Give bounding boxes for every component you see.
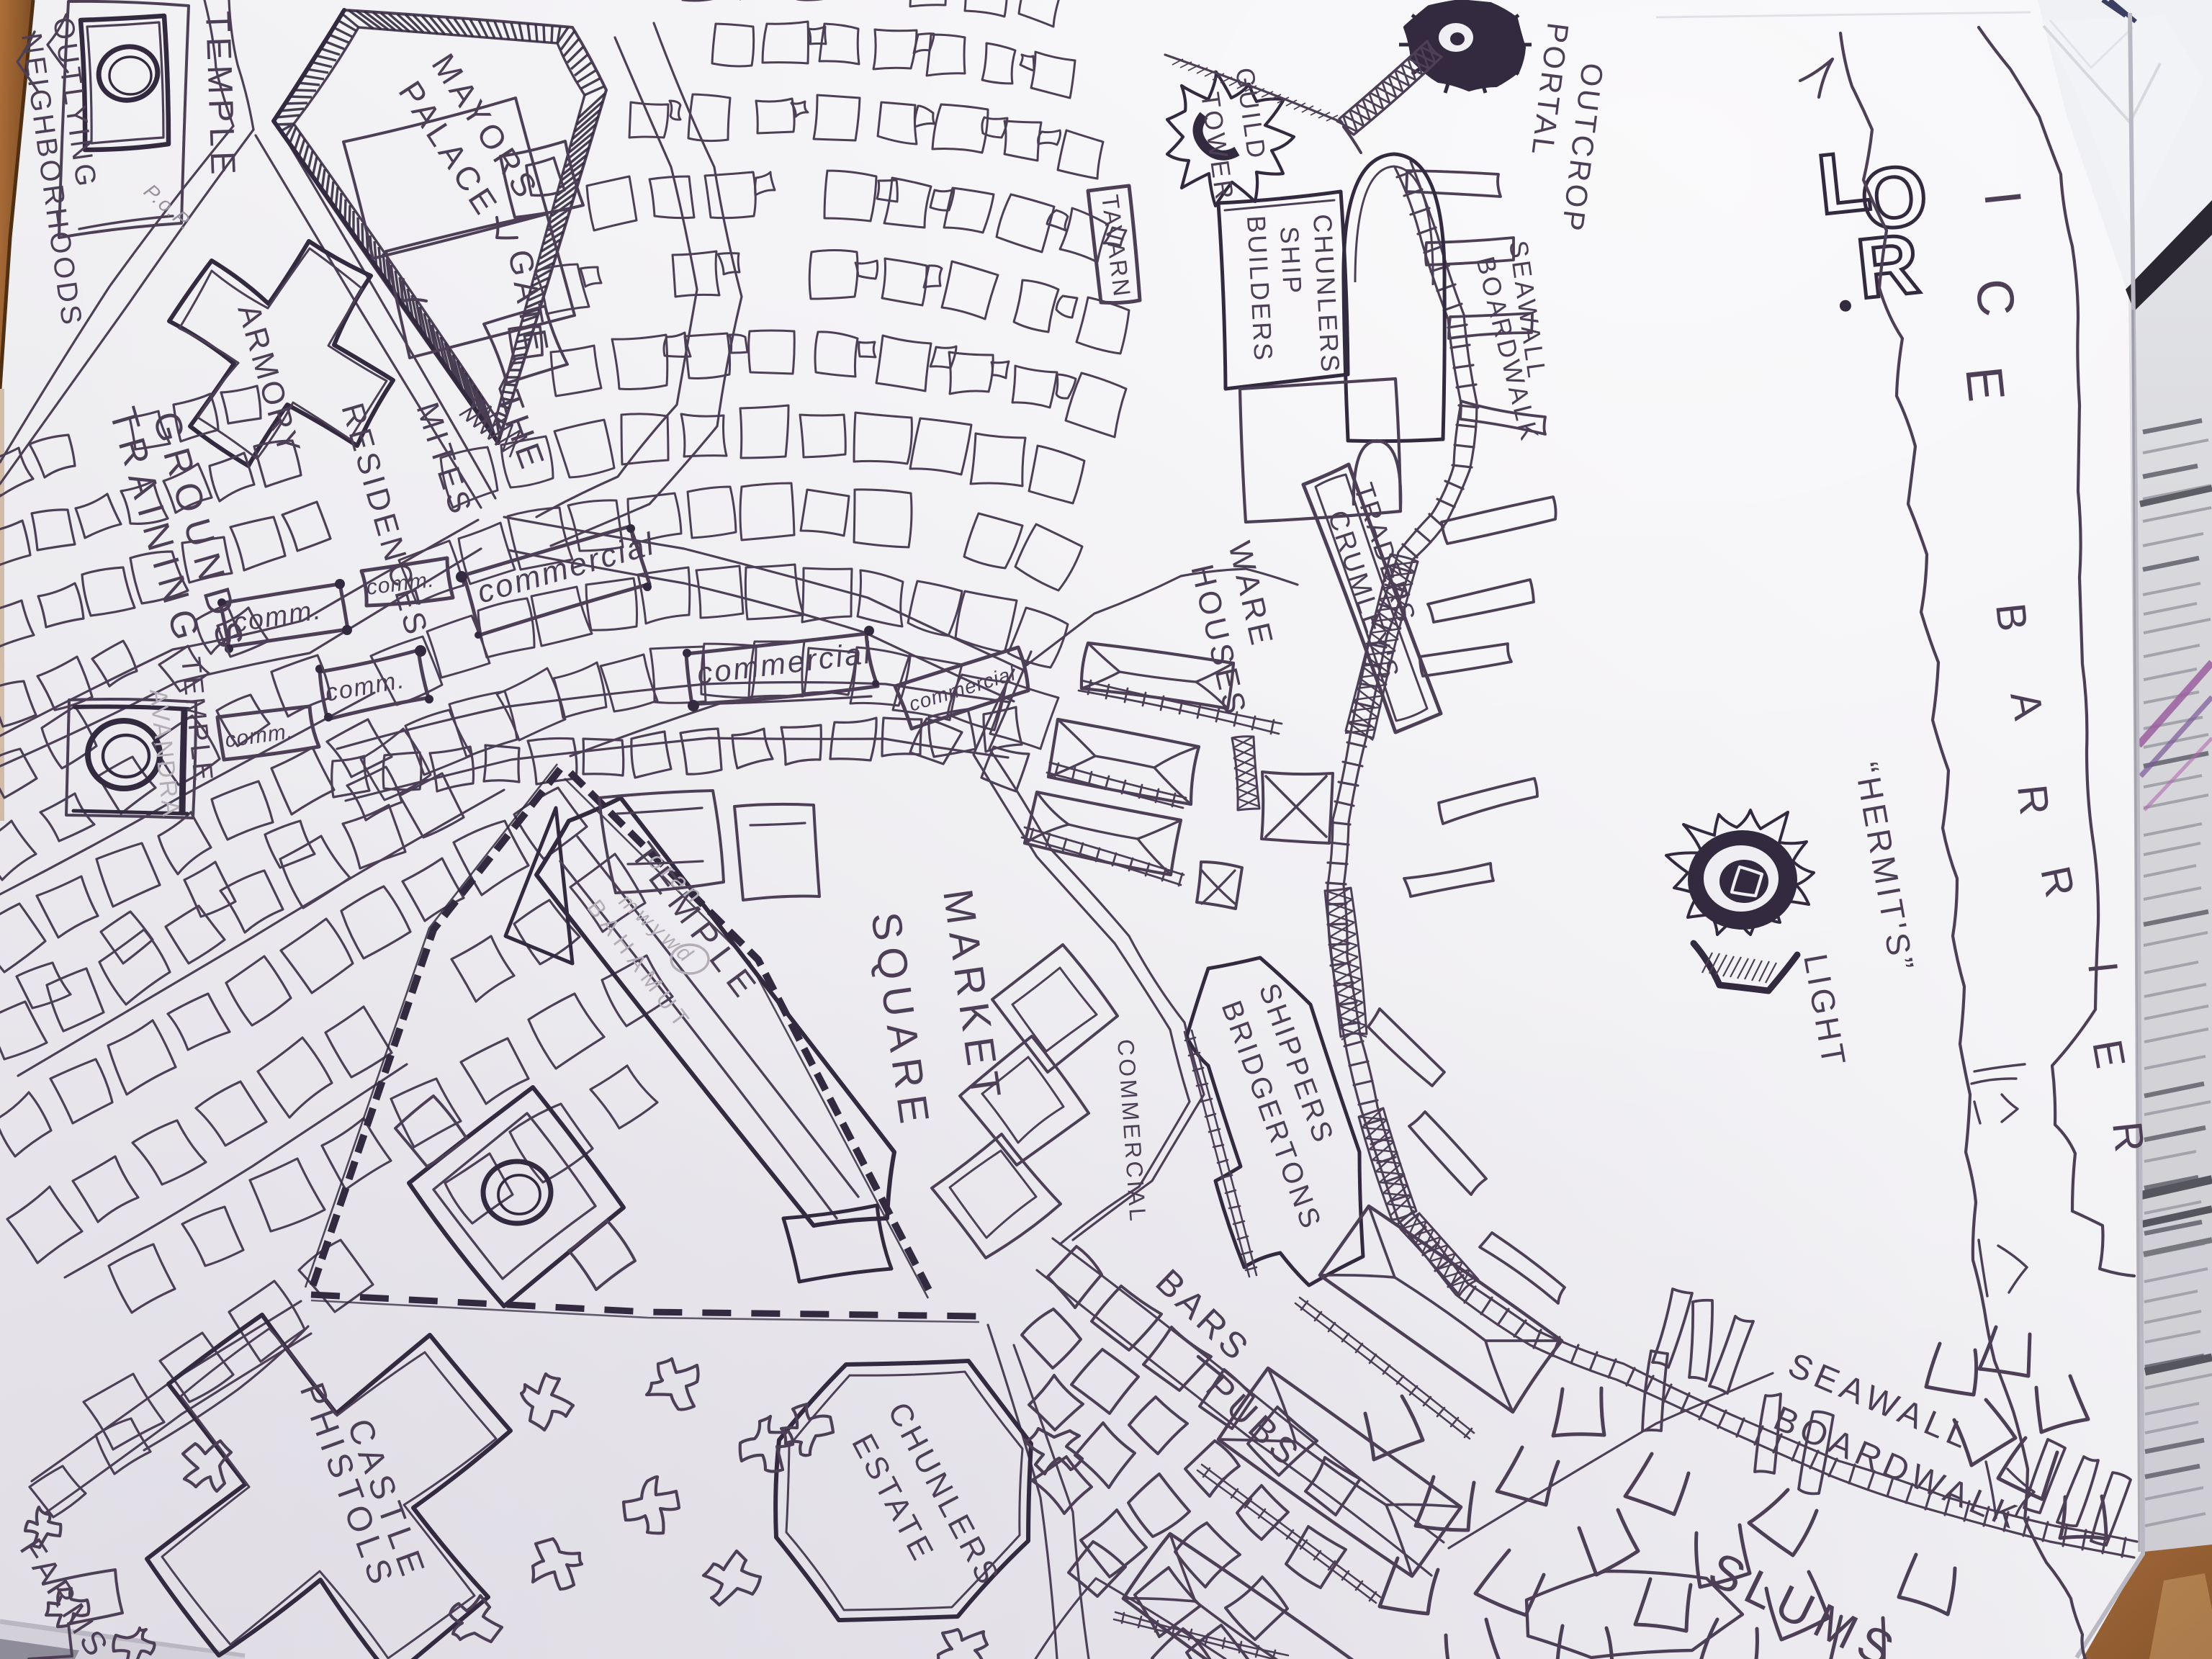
svg-text:TEMPLE: TEMPLE — [198, 11, 242, 181]
svg-text:R: R — [2103, 1120, 2154, 1159]
svg-text:SHIP: SHIP — [1274, 225, 1308, 296]
svg-text:C: C — [1964, 276, 2026, 319]
svg-text:B: B — [1987, 601, 2036, 638]
svg-text:E: E — [1954, 364, 2015, 404]
svg-text:R: R — [1853, 216, 1924, 317]
svg-text:R: R — [2008, 783, 2059, 822]
